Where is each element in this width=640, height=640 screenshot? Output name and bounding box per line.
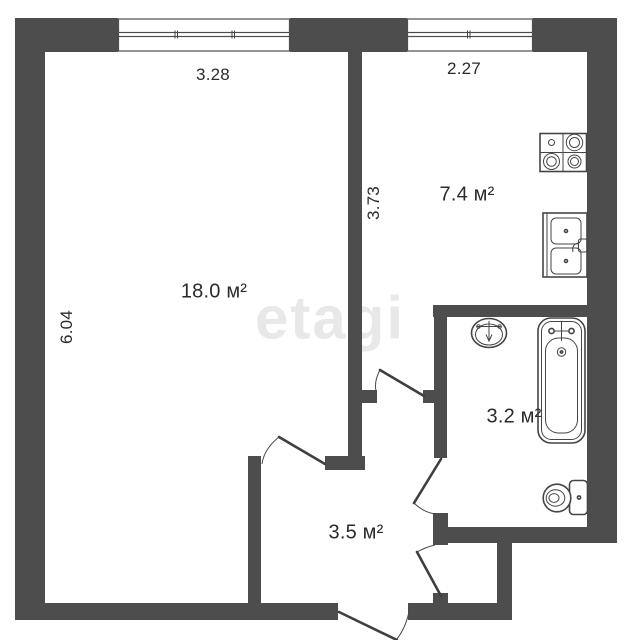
kitchen-door-icon — [376, 370, 425, 396]
kitchen-sink-icon — [543, 213, 587, 277]
dimension-kitchen-window-width: 2.27 — [447, 59, 481, 79]
bathroom-bottom-wall — [433, 527, 617, 543]
outer-walls — [15, 18, 617, 620]
bathroom-area-label: 3.2 м² — [487, 406, 542, 429]
window-icon — [408, 19, 533, 51]
kitchen-door-jamb — [362, 390, 377, 403]
hallway-area-label: 3.5 м² — [329, 522, 384, 545]
dimension-kitchen-depth: 3.73 — [364, 186, 384, 220]
room-door-icon — [262, 437, 325, 464]
living-room-area-label: 18.0 м² — [181, 281, 247, 304]
floor-plan-drawing — [0, 0, 640, 640]
bottom-wall-segment — [15, 603, 338, 620]
dimension-living-window-width: 3.28 — [196, 65, 230, 85]
bottom-right-step-wall — [497, 527, 512, 620]
right-wall — [587, 18, 617, 543]
bathroom-door-icon — [414, 459, 441, 514]
closet-wall-block — [433, 513, 448, 545]
entrance-door-icon — [339, 606, 410, 640]
living-kitchen-partition — [348, 52, 362, 470]
toilet-icon — [543, 481, 587, 515]
left-wall — [15, 18, 45, 620]
bathroom-top-wall — [433, 305, 587, 317]
bathtub-icon — [538, 318, 585, 443]
top-wall-segment — [290, 18, 407, 52]
hallway-left-wall — [248, 456, 261, 620]
kitchen-area-label: 7.4 м² — [440, 184, 495, 207]
bathroom-left-wall — [434, 305, 447, 458]
closet-door-icon — [417, 545, 441, 596]
bottom-wall-segment — [408, 603, 512, 620]
dimension-living-depth: 6.04 — [57, 310, 77, 344]
room-door-wall — [325, 456, 365, 470]
stove-icon — [540, 134, 587, 172]
window-icon — [119, 19, 290, 51]
floor-plan: etagi — [0, 0, 640, 640]
washbasin-icon — [472, 319, 507, 348]
